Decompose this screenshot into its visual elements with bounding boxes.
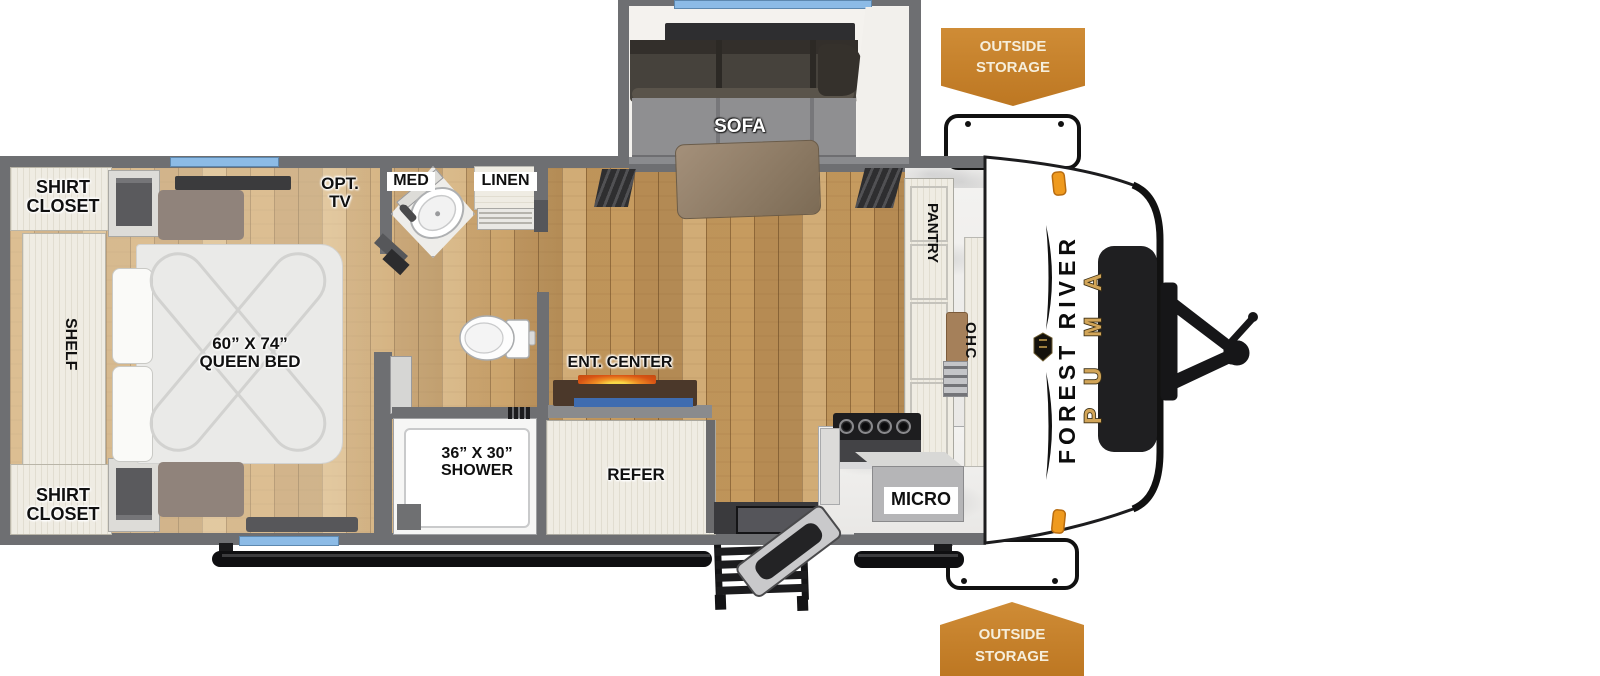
svg-text:P: P [1080, 408, 1107, 424]
svg-text:A: A [1080, 274, 1107, 291]
svg-text:PANTRY: PANTRY [924, 203, 941, 263]
svg-text:FOREST RIVER: FOREST RIVER [1054, 234, 1080, 464]
svg-text:U: U [1080, 368, 1107, 385]
svg-text:OHC: OHC [962, 322, 979, 360]
svg-text:M: M [1080, 317, 1107, 337]
svg-text:SHELF: SHELF [62, 318, 79, 371]
